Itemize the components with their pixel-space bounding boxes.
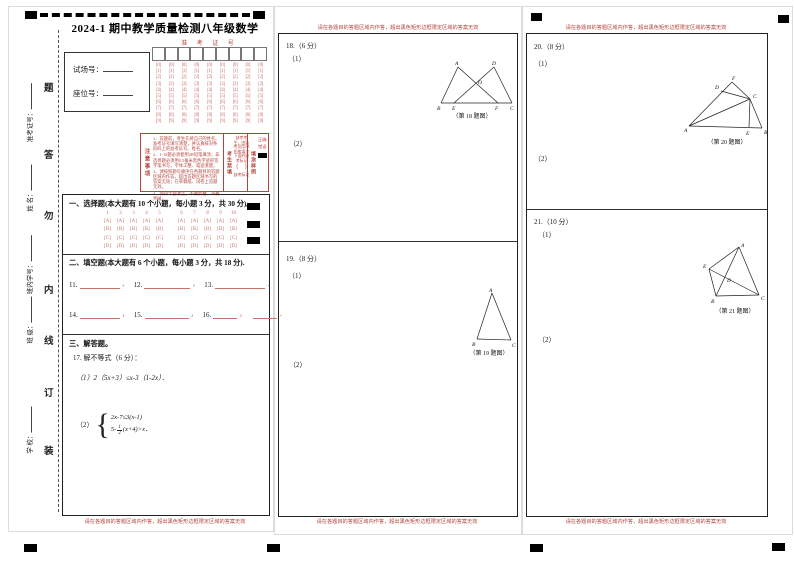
q17-part2: （2） { 2x-7≤3(x-1) 5- 1 2 (x+4)>x． — [76, 409, 151, 441]
registration-mark — [267, 544, 280, 552]
red-note-footer: 请在各题目的答题区域内作答，超出黑色矩形边框限定区域的答案无效 — [278, 518, 516, 525]
write-line — [25, 406, 32, 432]
q19-head: 19.（8 分） — [286, 254, 321, 264]
notice-item: 2、1-10题必须使用2B铅笔填涂；非选择题必须用0.5毫米黑色字迹的签字笔书写… — [153, 152, 221, 167]
notice-item: 1、答题前，考生先将自己的姓名、准考证号填写清楚，并认真核对条形码上的准考证号、… — [153, 136, 221, 151]
digit-bubble: [9] — [190, 119, 203, 125]
page-title: 2024-1 期中教学质量检测八年级数学 — [62, 20, 268, 36]
exam-number-box — [152, 47, 165, 61]
q21-part1: （1） — [538, 230, 556, 240]
vertex-label: A — [454, 61, 459, 67]
blank-section-title: 二、填空题(本大题有 6 个小题，每小题 3 分，共 18 分). — [69, 258, 245, 268]
vertex-label: A — [683, 128, 688, 134]
seat-field: 座位号： — [73, 88, 133, 99]
notice-item: 3、请按照题号顺序在各题目的答题区域内作答，超出答题区域书写的答案无效；在草稿纸… — [153, 169, 221, 190]
registration-mark — [24, 544, 37, 552]
binding-char: 订 — [44, 385, 54, 399]
blank-number: 16. — [203, 311, 212, 319]
registration-mark — [531, 13, 542, 21]
sample-wrong-label: 错误 — [258, 144, 266, 151]
choice-bubble: [B] — [140, 227, 153, 232]
fraction: 1 2 — [117, 425, 122, 436]
timing-dashes — [40, 13, 250, 17]
vertex-label: C — [761, 296, 765, 302]
question-divider — [279, 241, 517, 242]
choice-bubble: [D] — [140, 244, 153, 249]
write-line — [103, 65, 133, 72]
digit-bubble: [9] — [229, 119, 242, 125]
registration-mark — [778, 15, 789, 23]
timing-mark — [247, 221, 260, 228]
choice-bubble: [B] — [114, 227, 127, 232]
choice-number: 5 — [153, 211, 166, 216]
choice-bubble: [A] — [101, 219, 114, 224]
choice-bubble: [C] — [153, 236, 166, 241]
left-answer-box: 一、选择题(本大题有 10 个小题，每小题 3 分，共 30 分)。 12345… — [62, 194, 270, 516]
exam-number-boxes — [152, 47, 267, 61]
choice-bubble: [C] — [140, 236, 153, 241]
registration-mark — [530, 544, 543, 552]
red-note-header: 请在各题目的答题区域内作答，超出黑色矩形边框限定区域的答案无效 — [526, 24, 766, 31]
exam-number-box — [254, 47, 267, 61]
exam-number-box — [178, 47, 191, 61]
vertex-label: A — [488, 288, 493, 294]
timing-mark — [247, 203, 260, 210]
choice-bubble: [B] — [175, 227, 188, 232]
choice-bubble: [D] — [175, 244, 188, 249]
q20-part1: （1） — [534, 59, 552, 69]
blank-number: 12. — [134, 281, 143, 289]
timing-mark — [247, 237, 260, 244]
choice-number-row: 12345678910 — [101, 210, 240, 217]
digit-bubble: [9] — [203, 119, 216, 125]
vertex-label: F — [731, 76, 736, 82]
vertex-label: D — [491, 61, 496, 67]
blank-separator: ， — [191, 309, 198, 319]
write-line — [25, 236, 32, 262]
choice-bubble: [B] — [101, 227, 114, 232]
margin-field-class: 班 级： — [24, 296, 34, 343]
question-divider — [527, 209, 767, 210]
figure-21-caption: （第 21 题图） — [687, 306, 783, 315]
choice-number: 10 — [227, 211, 240, 216]
choice-bubble: [C] — [127, 236, 140, 241]
registration-mark — [772, 543, 785, 551]
q17-part2-label: （2） — [76, 420, 94, 430]
figure-20-caption: （第 20 题图） — [677, 137, 777, 146]
digit-bubble: [9] — [254, 119, 267, 125]
choice-bubble: [D] — [214, 244, 227, 249]
choice-bubble: [A] — [227, 219, 240, 224]
figure-21: A E D B C — [701, 241, 769, 305]
blank-number: 13. — [204, 281, 213, 289]
sample-filled-mark — [258, 153, 267, 158]
choice-bubble: [A] — [188, 219, 201, 224]
choice-bubble: [D] — [114, 244, 127, 249]
choice-bubble: [D] — [127, 244, 140, 249]
vertex-label: D — [714, 85, 719, 91]
system-brace: { — [96, 409, 110, 441]
digit-bubble: [9] — [152, 119, 165, 125]
blank-number: 11. — [69, 281, 78, 289]
write-line — [25, 296, 32, 322]
blank-separator: ， — [122, 309, 129, 319]
notice-box: 注意事项 1、答题前，考生先将自己的姓名、准考证号填写清楚，并认真核对条形码上的… — [140, 133, 269, 192]
choice-bubble: [B] — [214, 227, 227, 232]
choice-option-row: [A][A][A][A][A][A][A][A][A][A] — [101, 217, 240, 226]
vertex-label: E — [702, 264, 707, 270]
blank-separator: ， — [192, 279, 199, 289]
digit-row: [9][9][9][9][9][9][9][9][9] — [152, 119, 267, 125]
blank-line — [213, 311, 237, 319]
figure-20: F D C A E B — [683, 75, 769, 137]
exam-number-box — [203, 47, 216, 61]
sample-title: 填涂样例 — [248, 134, 256, 191]
digit-bubble: [9] — [241, 119, 254, 125]
choice-number: 8 — [201, 211, 214, 216]
choice-bubble: [C] — [201, 236, 214, 241]
registration-mark — [25, 11, 37, 19]
write-line — [25, 84, 32, 110]
blank-row: 14.，15.，16.，． — [69, 309, 291, 319]
exam-number-box — [241, 47, 254, 61]
notice-title: 注意事项 — [141, 134, 152, 191]
q20-part2: （2） — [534, 154, 552, 164]
choice-number: 7 — [188, 211, 201, 216]
vertex-label: B — [711, 299, 715, 305]
exam-number-box — [165, 47, 178, 61]
q18-head: 18.（6 分） — [286, 41, 321, 51]
choice-bubble: [D] — [153, 244, 166, 249]
choice-number: 9 — [214, 211, 227, 216]
sample-correct-label: 正确 — [258, 137, 266, 144]
digit-bubble: [9] — [178, 119, 191, 125]
right-answer-box: 20.（8 分） （1） F D C A E B （第 20 题图） （2） 2… — [526, 33, 768, 517]
blank-row: 11.，12.，13.． — [69, 279, 279, 289]
choice-number: 1 — [101, 211, 114, 216]
blank-line — [215, 281, 265, 289]
answer-sheet: 题 答 勿 内 线 订 装 准考证号： 姓 名： 班内学号： 班 级： 学 校：… — [0, 0, 794, 561]
choice-bubble: [A] — [214, 219, 227, 224]
choice-option-row: [C][C][C][C][C][C][C][C][C][C] — [101, 234, 240, 243]
q19-part2: （2） — [289, 360, 307, 370]
q17-part1: （1）2（5x+3）≤x-3（1-2x）． — [76, 373, 169, 383]
write-line — [25, 164, 32, 190]
choice-bubble: [B] — [201, 227, 214, 232]
figure-19: A B C — [463, 287, 517, 347]
figure-18: A D O B E F C — [426, 53, 518, 111]
absent-section: 考生禁填 缺考考生，由监考员用2B铅笔填涂下面的缺考标记 （ ） 缺考标记 — [224, 134, 247, 191]
choice-bubble: [B] — [188, 227, 201, 232]
choice-bubble: [C] — [175, 236, 188, 241]
choice-bubble: [B] — [153, 227, 166, 232]
binding-char: 勿 — [44, 208, 54, 222]
q18-part2: （2） — [289, 139, 307, 149]
system-line1: 2x-7≤3(x-1) — [111, 414, 152, 421]
choice-bubble: [C] — [101, 236, 114, 241]
binding-char: 内 — [44, 282, 54, 296]
q21-part2: （2） — [538, 335, 556, 345]
choice-option-row: [B][B][B][B][B][B][B][B][B][B] — [101, 226, 240, 235]
registration-mark — [253, 11, 265, 19]
section-divider — [63, 254, 269, 255]
binding-char: 题 — [44, 80, 54, 94]
blank-line — [253, 311, 277, 319]
q17-label: 17. 解不等式（6 分）： — [73, 353, 141, 363]
choice-bubble: [B] — [127, 227, 140, 232]
exam-number-bubbles: [0][0][0][0][0][0][0][0][0][1][1][1][1][… — [152, 63, 267, 125]
vertex-label: A — [740, 243, 745, 249]
sample-section: 填涂样例 正确 错误 — [248, 134, 268, 191]
exam-number-box — [216, 47, 229, 61]
blank-separator: ． — [267, 279, 274, 289]
choice-bubble: [A] — [201, 219, 214, 224]
margin-field-class-no: 班内学号： — [24, 236, 34, 295]
digit-bubble: [9] — [165, 119, 178, 125]
margin-field-exam-no: 准考证号： — [24, 84, 34, 143]
q18-part1: （1） — [288, 54, 306, 64]
red-note-footer: 请在各题目的答题区域内作答，超出黑色矩形边框限定区域的答案无效 — [62, 518, 268, 525]
choice-bubble: [B] — [227, 227, 240, 232]
digit-bubble: [9] — [216, 119, 229, 125]
q20-head: 20.（8 分） — [534, 42, 569, 52]
blank-separator: ， — [239, 309, 246, 319]
binding-line — [58, 30, 59, 512]
margin-field-school: 学 校： — [24, 406, 34, 453]
choice-bubble: [A] — [127, 219, 140, 224]
binding-char: 答 — [44, 147, 54, 161]
exam-number-box — [190, 47, 203, 61]
exam-number-header: 准 考 证 号 — [152, 38, 267, 47]
choice-bubble: [A] — [153, 219, 166, 224]
choice-number: 2 — [114, 211, 127, 216]
blank-line — [144, 281, 190, 289]
exam-number-box — [229, 47, 242, 61]
binding-char: 线 — [44, 333, 54, 347]
choice-bubble: [D] — [188, 244, 201, 249]
choice-number: 6 — [175, 211, 188, 216]
choice-bubble-grid: 12345678910[A][A][A][A][A][A][A][A][A][A… — [101, 210, 240, 251]
choice-bubble: [C] — [188, 236, 201, 241]
choice-bubble: [C] — [214, 236, 227, 241]
choice-bubble: [D] — [227, 244, 240, 249]
choice-bubble: [A] — [175, 219, 188, 224]
choice-section-title: 一、选择题(本大题有 10 个小题，每小题 3 分，共 30 分)。 — [69, 199, 253, 209]
solve-section-title: 三、解答题。 — [69, 339, 112, 349]
room-seat-box: 试场号： 座位号： — [64, 52, 150, 112]
choice-bubble: [C] — [227, 236, 240, 241]
notice-items: 1、答题前，考生先将自己的姓名、准考证号填写清楚，并认真核对条形码上的准考证号、… — [152, 134, 223, 191]
figure-19-caption: （第 19 题图） — [449, 348, 529, 357]
vertex-label: D — [726, 278, 731, 284]
figure-18-caption: （第 18 题图） — [419, 111, 525, 120]
q21-head: 21.（10 分） — [534, 217, 573, 227]
choice-bubble: [A] — [140, 219, 153, 224]
vertex-label: B — [764, 130, 768, 136]
absent-title: 考生禁填 — [224, 134, 232, 191]
choice-bubble: [A] — [114, 219, 127, 224]
choice-number: 4 — [140, 211, 153, 216]
red-note-header: 请在各题目的答题区域内作答，超出黑色矩形边框限定区域的答案无效 — [280, 24, 516, 31]
blank-line — [80, 311, 120, 319]
section-divider — [63, 334, 269, 335]
blank-number: 15. — [134, 311, 143, 319]
blank-line — [80, 281, 120, 289]
write-line — [103, 89, 133, 96]
exam-room-field: 试场号： — [73, 64, 133, 75]
blank-separator: ， — [122, 279, 129, 289]
middle-answer-box: 18.（6 分） （1） A D O B E F C （第 18 题图） （2）… — [278, 33, 518, 517]
q19-part1: （1） — [288, 271, 306, 281]
choice-bubble: [C] — [114, 236, 127, 241]
vertex-label: O — [478, 80, 482, 86]
blank-line — [145, 311, 189, 319]
blank-number: 14. — [69, 311, 78, 319]
choice-bubble: [D] — [201, 244, 214, 249]
binding-char: 装 — [44, 443, 54, 457]
red-note-footer: 请在各题目的答题区域内作答，超出黑色矩形边框限定区域的答案无效 — [526, 518, 766, 525]
system-line2: 5- 1 2 (x+4)>x． — [111, 425, 152, 436]
choice-option-row: [D][D][D][D][D][D][D][D][D][D] — [101, 243, 240, 252]
choice-number: 3 — [127, 211, 140, 216]
margin-field-name: 姓 名： — [24, 164, 34, 211]
choice-bubble: [D] — [101, 244, 114, 249]
vertex-label: C — [753, 94, 757, 100]
